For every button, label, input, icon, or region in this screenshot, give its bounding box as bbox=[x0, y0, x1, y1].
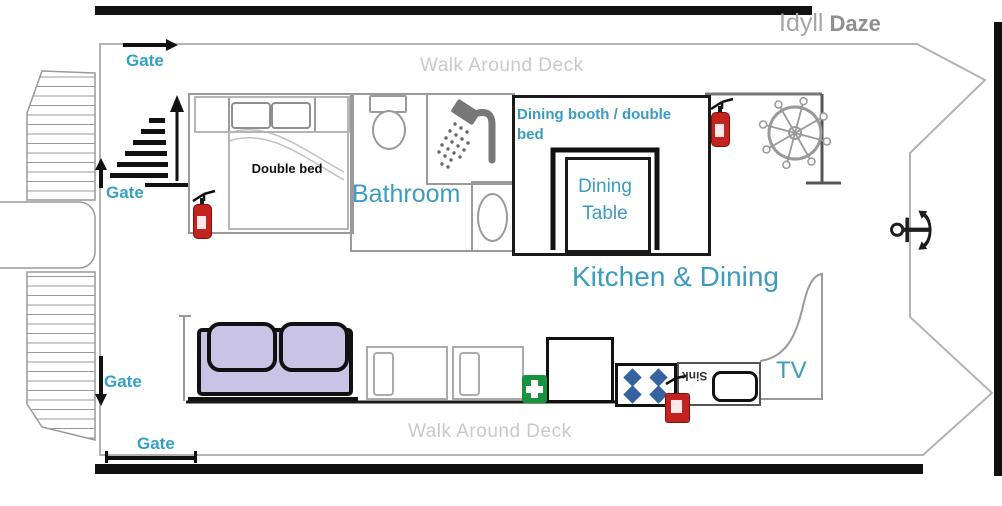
stern-pontoon-top bbox=[27, 71, 95, 200]
bathroom-sink-icon bbox=[477, 193, 508, 242]
bathroom-label: Bathroom bbox=[352, 180, 460, 209]
kitchen-sink-basin bbox=[712, 371, 758, 402]
boarding-platform bbox=[0, 202, 95, 268]
gate-label-left-lower: Gate bbox=[104, 372, 142, 392]
bench-seat bbox=[366, 346, 448, 400]
burner-icon bbox=[623, 368, 641, 386]
fire-extinguisher-icon bbox=[709, 97, 735, 147]
tv-label: TV bbox=[776, 357, 807, 385]
ship-wheel-icon bbox=[750, 88, 839, 177]
right-frame-bar bbox=[994, 22, 1002, 476]
burner-icon bbox=[623, 385, 641, 403]
gate-label-bottom: Gate bbox=[137, 434, 175, 454]
houseboat-floor-plan: IdyllDaze Walk Around Deck Walk Around D… bbox=[0, 0, 1002, 506]
deck-label-top: Walk Around Deck bbox=[420, 55, 584, 77]
first-aid-icon bbox=[522, 375, 547, 403]
boat-name-bold: Daze bbox=[829, 11, 880, 36]
anchor-icon: ⚓ bbox=[885, 205, 941, 255]
bed-pillow bbox=[271, 102, 311, 129]
fire-extinguisher-icon bbox=[663, 373, 689, 423]
gate-marker-top bbox=[123, 39, 178, 51]
stern-pontoon-bottom bbox=[27, 272, 95, 440]
shower-cubicle bbox=[426, 93, 515, 185]
fridge bbox=[546, 337, 614, 403]
dining-table: Dining Table bbox=[565, 157, 651, 253]
gate-label-left-upper: Gate bbox=[106, 183, 144, 203]
dining-table-label: Dining Table bbox=[568, 174, 642, 227]
sofa-wall bbox=[179, 316, 191, 401]
dining-booth-label: Dining booth / double bed bbox=[517, 105, 692, 144]
bench-seat bbox=[452, 346, 524, 400]
toilet-bowl-icon bbox=[372, 110, 406, 150]
sofa-cushion bbox=[279, 322, 349, 372]
kitchen-label: Kitchen & Dining bbox=[572, 261, 779, 293]
boat-name-light: Idyll bbox=[779, 9, 823, 37]
sofa-cushion bbox=[207, 322, 277, 372]
arrow-up-icon bbox=[170, 95, 184, 181]
bed-pillow bbox=[231, 102, 271, 129]
helm-wall bbox=[806, 94, 841, 183]
deck-label-bottom: Walk Around Deck bbox=[408, 421, 572, 443]
bottom-rail bbox=[95, 464, 923, 474]
top-rail bbox=[95, 6, 812, 15]
fire-extinguisher-icon bbox=[191, 189, 217, 239]
bedroom-label: Double bed bbox=[232, 161, 342, 176]
boat-name: IdyllDaze bbox=[779, 9, 881, 38]
gate-label-top: Gate bbox=[126, 51, 164, 71]
